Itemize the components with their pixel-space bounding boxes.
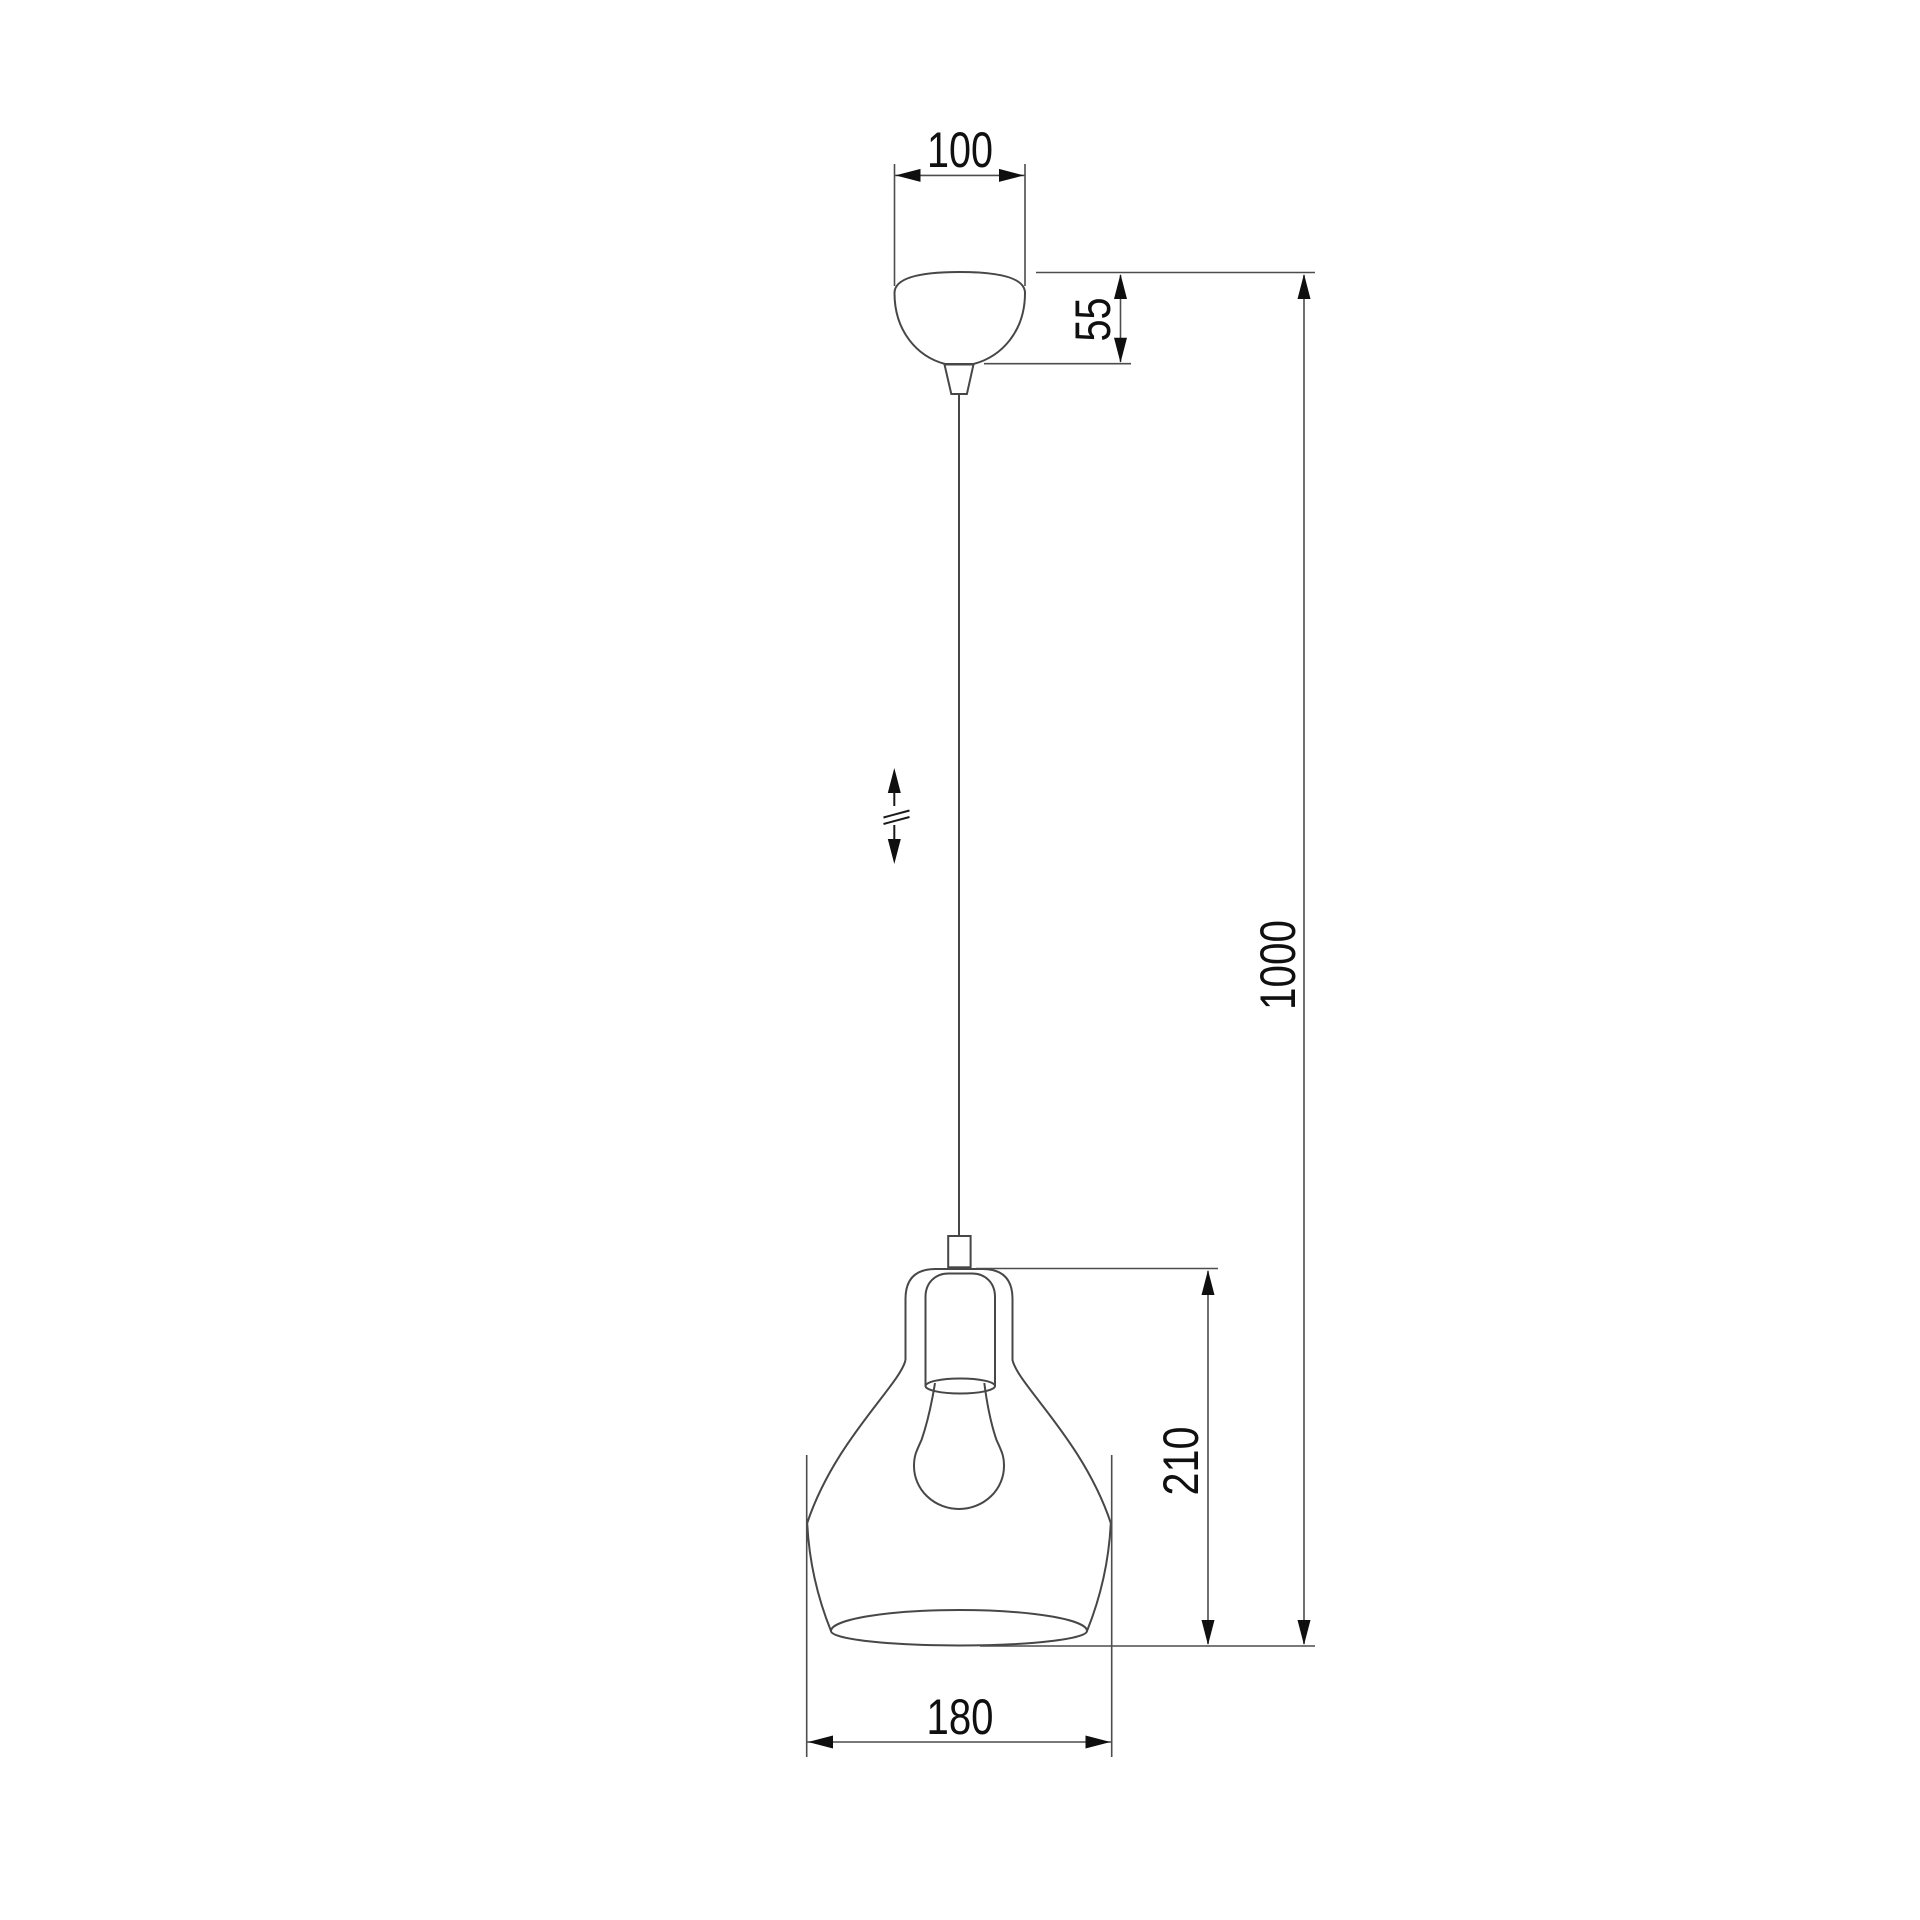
svg-text:100: 100 bbox=[927, 122, 993, 178]
svg-text:180: 180 bbox=[927, 1689, 994, 1745]
svg-text:55: 55 bbox=[1065, 298, 1121, 342]
svg-text:210: 210 bbox=[1153, 1427, 1209, 1496]
svg-text:1000: 1000 bbox=[1250, 920, 1306, 1010]
